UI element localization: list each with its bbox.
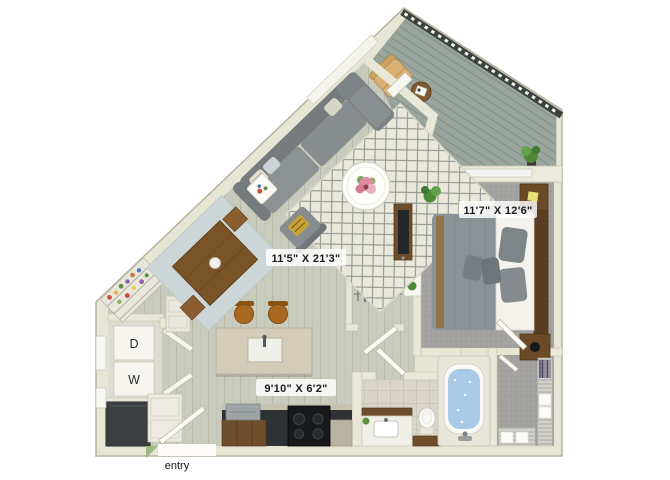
tub-water xyxy=(448,369,480,429)
coffee-table xyxy=(342,162,390,210)
floorplan-image: D W xyxy=(0,0,670,480)
bedroom-dimension-text: 11'7" X 12'6" xyxy=(463,205,532,217)
vanity-plant-icon xyxy=(363,418,370,425)
headboard xyxy=(534,210,548,334)
bar-stool xyxy=(234,301,254,324)
kitchen-dimension-label: 9'10" X 6'2" xyxy=(256,379,336,396)
tub-faucet-icon xyxy=(458,436,472,441)
dryer-letter: D xyxy=(129,337,138,351)
folded-towels xyxy=(516,432,528,443)
vanity-sink xyxy=(374,421,398,437)
notepad xyxy=(527,191,538,201)
vanity-mirror xyxy=(362,408,412,416)
kitchen-bath-wall xyxy=(352,372,362,446)
toilet xyxy=(419,408,435,434)
bathtub xyxy=(438,356,490,446)
kitchen-counter xyxy=(222,404,352,446)
left-wall-window xyxy=(96,388,106,408)
kitchen-cabinet xyxy=(330,420,352,446)
bedroom-bottom-wall xyxy=(421,348,461,356)
refrigerator xyxy=(106,402,150,446)
hamper xyxy=(413,436,441,446)
bedroom-dimension-label: 11'7" X 12'6" xyxy=(459,201,537,218)
speaker xyxy=(530,342,540,352)
folded-towels xyxy=(539,407,551,418)
folded-towels xyxy=(539,394,551,405)
bed xyxy=(432,210,548,334)
left-wall-window xyxy=(96,336,106,370)
sink-faucet-icon xyxy=(384,418,388,422)
living-dimension-label: 11'5" X 21'3" xyxy=(266,249,346,266)
entry-label: entry xyxy=(165,460,190,472)
bar-stool xyxy=(268,301,288,324)
entry-threshold xyxy=(158,444,216,456)
floor-plan: D W xyxy=(0,0,670,480)
kitchen-island xyxy=(216,328,312,377)
kitchen-cabinet xyxy=(222,420,266,446)
island-faucet-icon xyxy=(263,338,266,347)
washer-letter: W xyxy=(128,373,140,387)
folded-towels xyxy=(501,432,513,443)
kitchen-dimension-text: 9'10" X 6'2" xyxy=(264,383,327,395)
tv xyxy=(398,210,409,254)
entry-cabinet xyxy=(148,394,182,442)
range xyxy=(288,406,330,446)
bed-throw xyxy=(436,216,444,328)
media-console xyxy=(394,204,412,260)
bathroom-top-wall xyxy=(362,372,376,380)
hanging-clothes xyxy=(539,360,551,378)
living-dimension-text: 11'5" X 21'3" xyxy=(271,253,340,265)
